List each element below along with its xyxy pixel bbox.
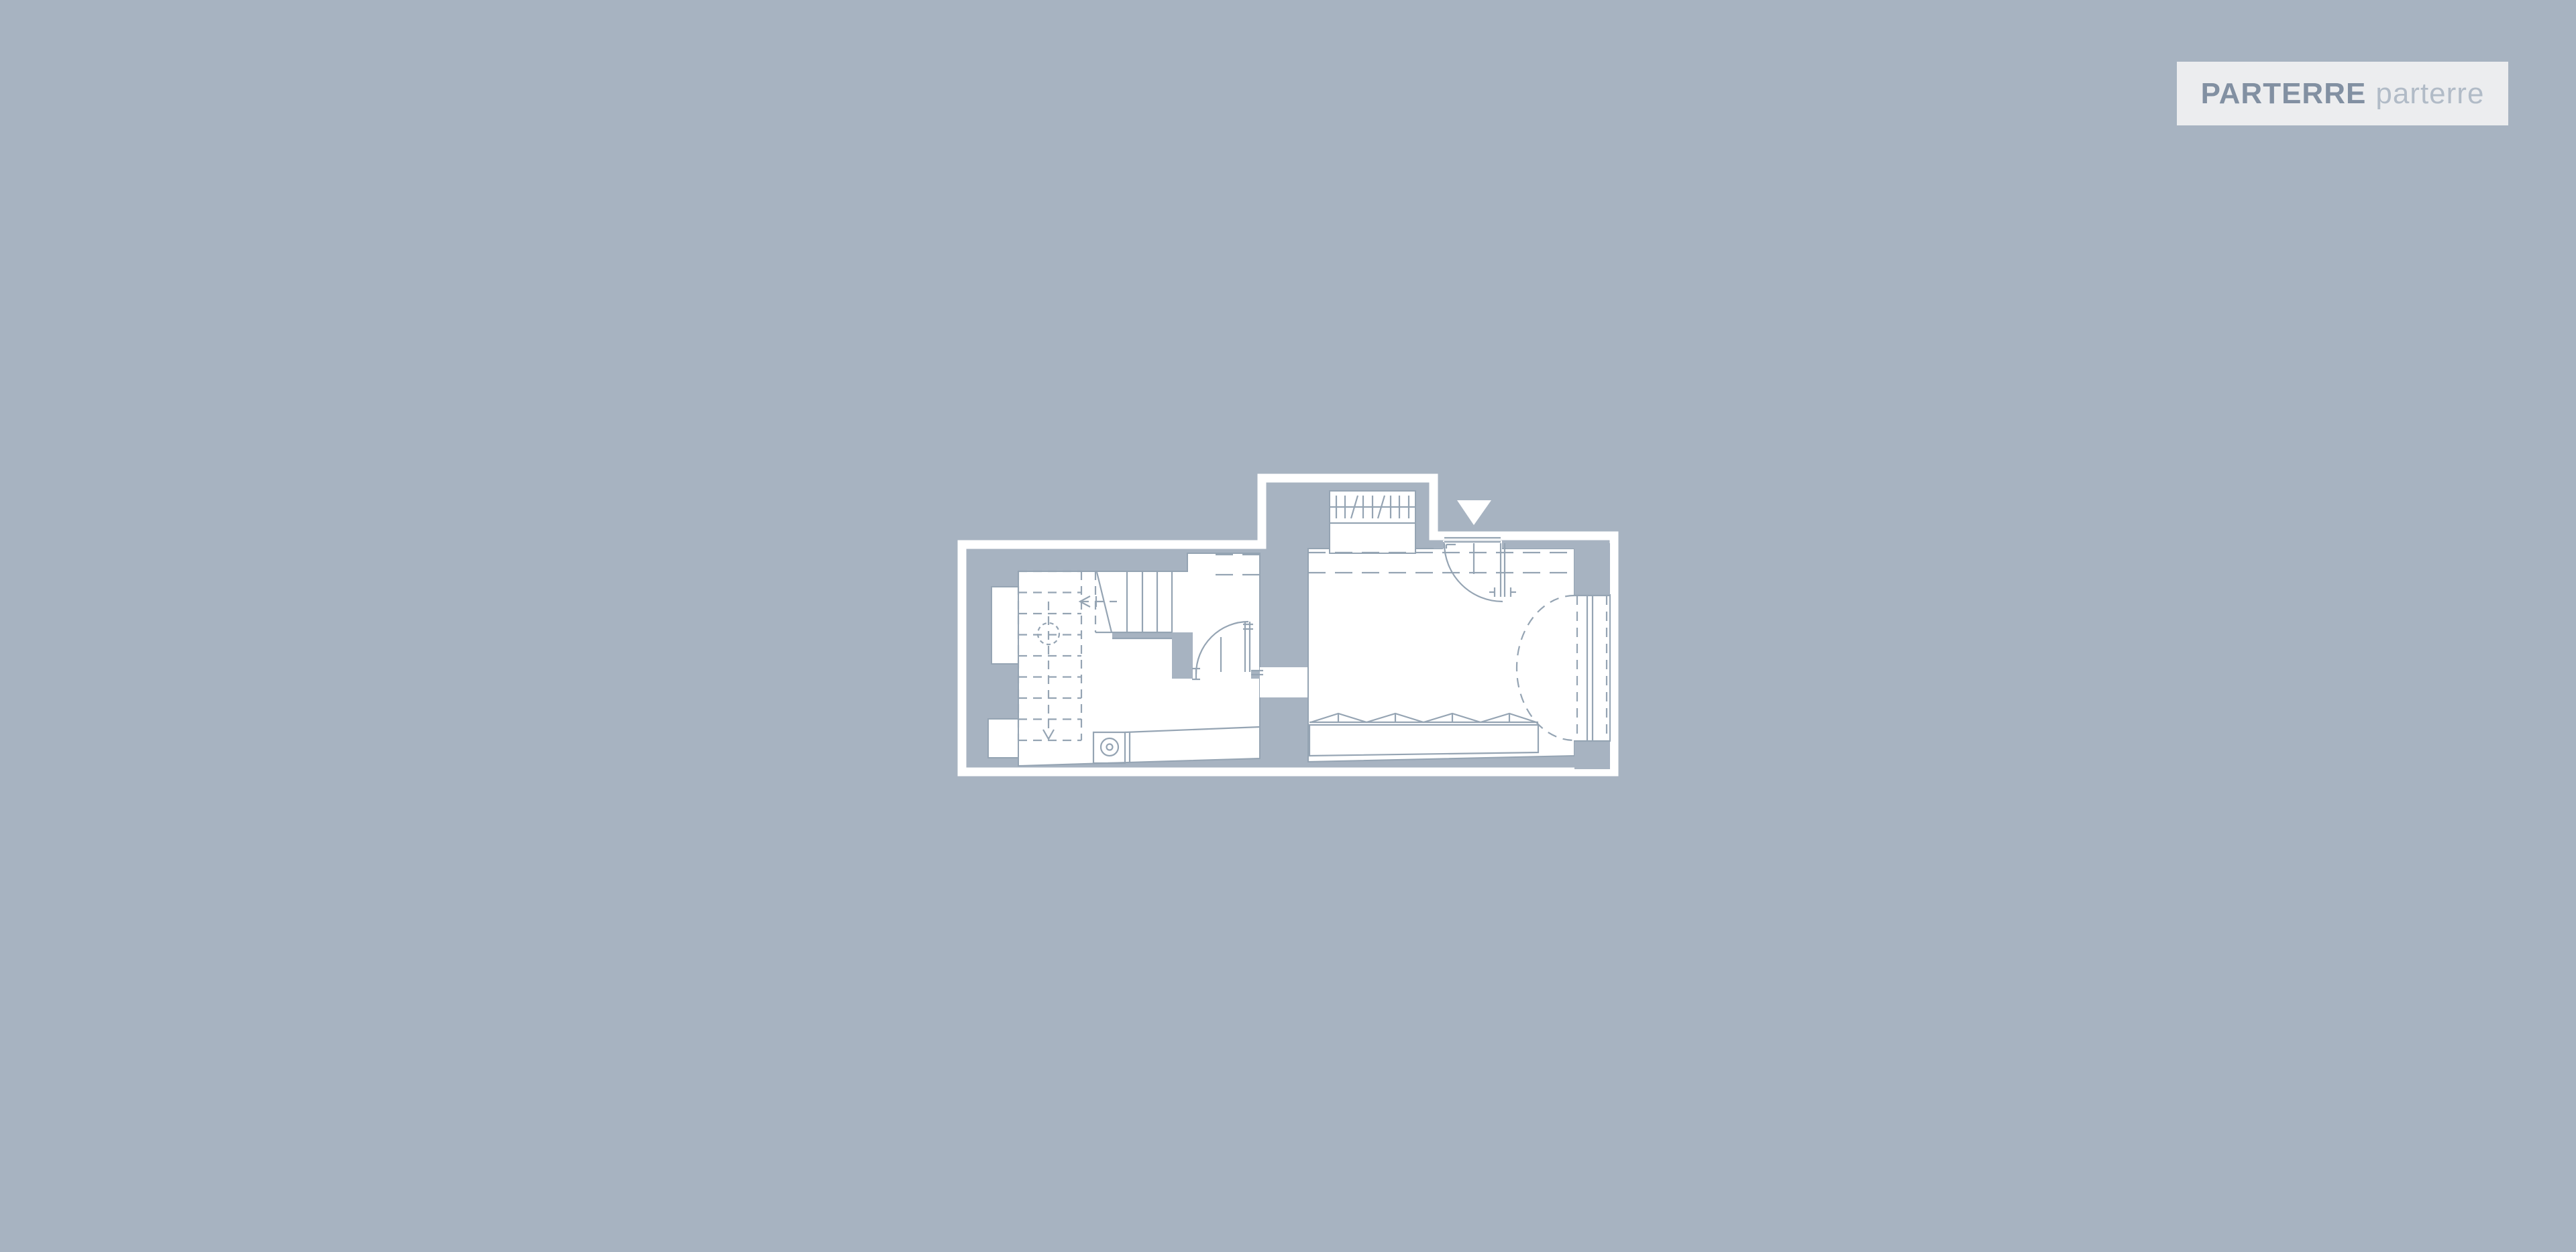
wall-block-bottom-right <box>1574 741 1610 769</box>
wall-notch <box>1172 632 1193 679</box>
wall-lip-left-of-entrance <box>1434 542 1444 549</box>
floor-selector-badge[interactable]: PARTERRE parterre <box>2177 62 2508 125</box>
floor-selector-subtitle: parterre <box>2375 77 2484 111</box>
left-room <box>1018 553 1260 766</box>
floor-selector-title: PARTERRE <box>2201 77 2367 111</box>
wall-block-top-right <box>1574 543 1610 595</box>
right-room <box>1308 549 1610 762</box>
floor-plan-svg <box>0 0 2576 1252</box>
wall-lip-right-of-entrance <box>1506 542 1574 549</box>
canvas: PARTERRE parterre <box>0 0 2576 1252</box>
entrance-marker-triangle <box>1457 500 1491 525</box>
entrance-marker <box>1457 500 1491 525</box>
passage-opening <box>1260 667 1309 697</box>
window-niche-upper <box>991 587 1018 664</box>
window-niche-lower <box>988 719 1018 758</box>
